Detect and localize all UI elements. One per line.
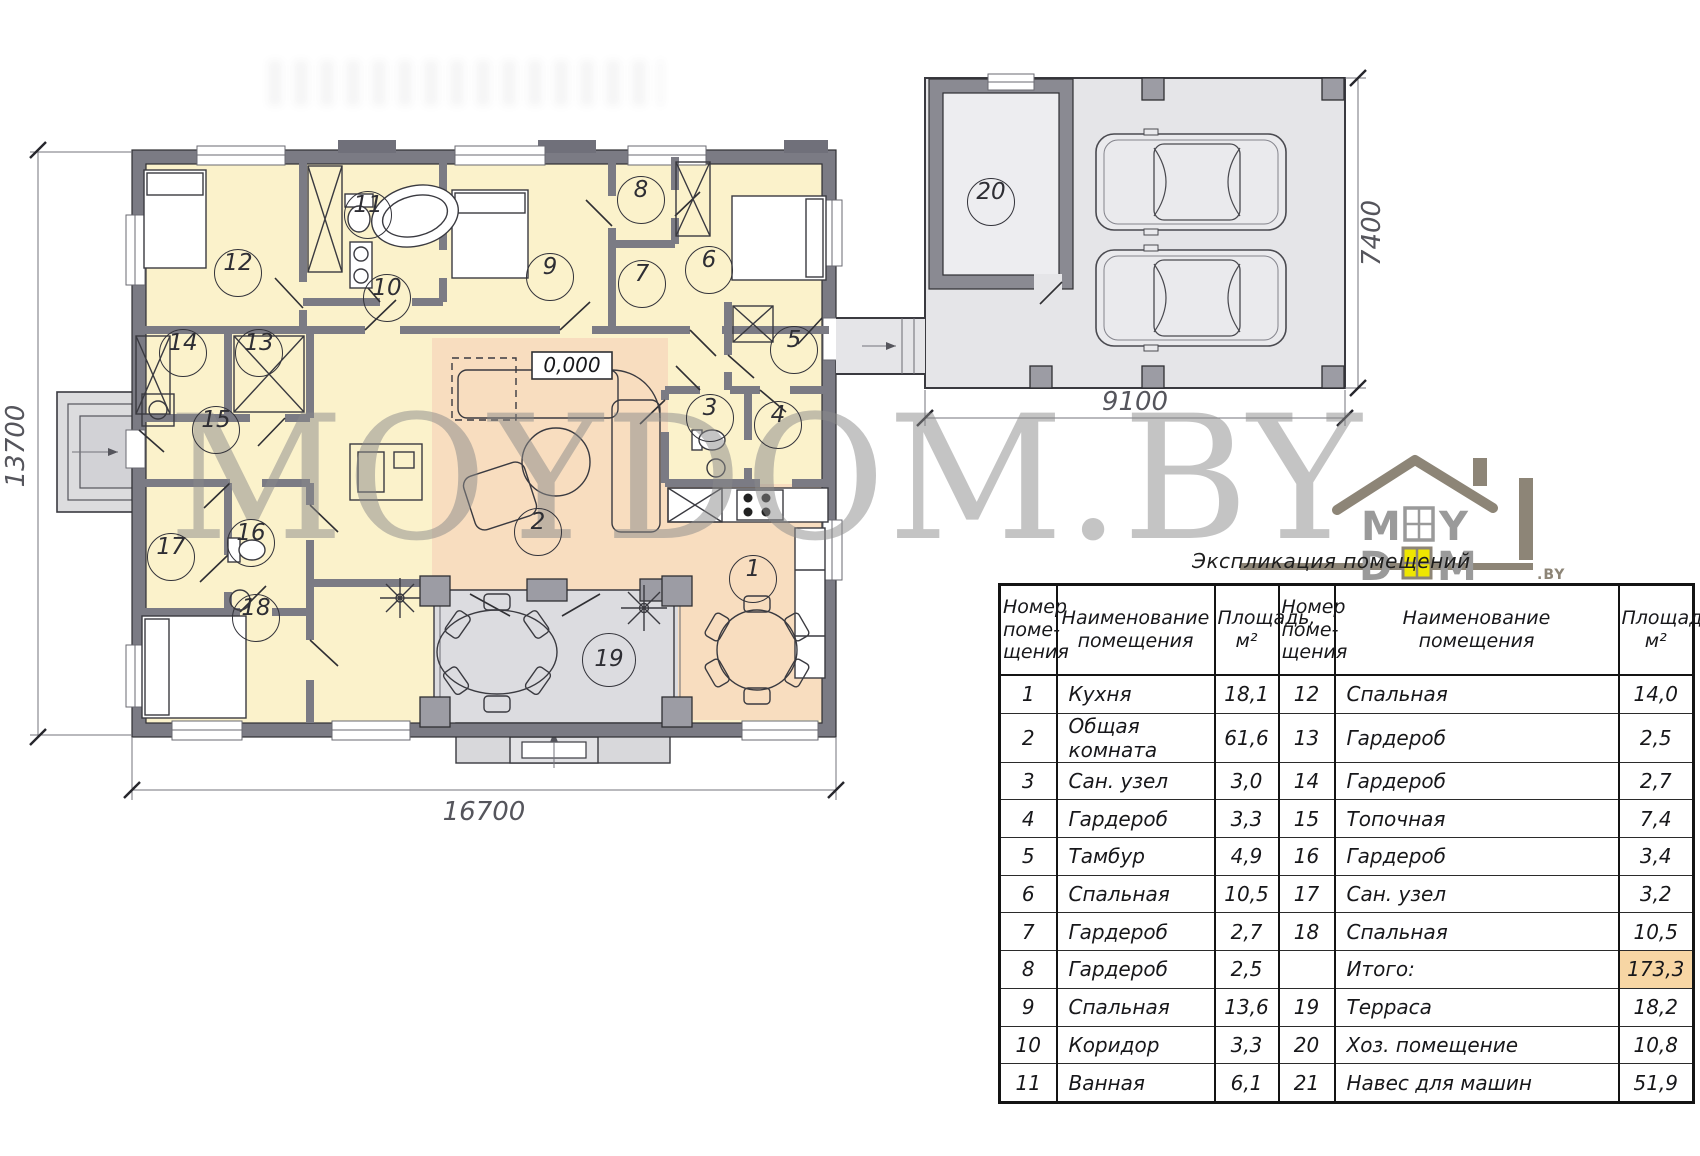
table-row: 11Ванная6,121Навес для машин51,9 xyxy=(1000,1064,1694,1103)
header-name-right: Наименование помещения xyxy=(1335,585,1619,676)
table-row: 6Спальная10,517Сан. узел3,2 xyxy=(1000,875,1694,913)
cell-lname: Спальная xyxy=(1057,875,1215,913)
table-row: 5Тамбур4,916Гардероб3,4 xyxy=(1000,838,1694,876)
cell-rarea: 14,0 xyxy=(1619,675,1694,713)
cell-larea: 2,5 xyxy=(1215,951,1279,989)
header-number-right: Номер поме- щения xyxy=(1279,585,1335,676)
room-legend-table: Номер поме- щения Наименование помещения… xyxy=(998,583,1695,1104)
cell-rname: Терраса xyxy=(1335,988,1619,1026)
cell-rn: 15 xyxy=(1279,800,1335,838)
cell-ln: 10 xyxy=(1000,1026,1057,1064)
cell-rn: 19 xyxy=(1279,988,1335,1026)
cell-rn: 20 xyxy=(1279,1026,1335,1064)
cell-rarea: 2,7 xyxy=(1619,762,1694,800)
room-label-15: 15 xyxy=(192,406,240,454)
cell-larea: 3,3 xyxy=(1215,800,1279,838)
cell-rname: Хоз. помещение xyxy=(1335,1026,1619,1064)
room-label-4: 4 xyxy=(754,401,802,449)
room-label-18: 18 xyxy=(232,594,280,642)
cell-rn xyxy=(1279,951,1335,989)
room-label-1: 1 xyxy=(729,555,777,603)
floorplan-sheet: 0,000 xyxy=(0,0,1700,1156)
cell-rname: Навес для машин xyxy=(1335,1064,1619,1103)
cell-lname: Общая комната xyxy=(1057,713,1215,762)
cell-rn: 18 xyxy=(1279,913,1335,951)
cell-ln: 3 xyxy=(1000,762,1057,800)
cell-lname: Гардероб xyxy=(1057,800,1215,838)
cell-lname: Спальная xyxy=(1057,988,1215,1026)
table-row: 8Гардероб2,5Итого:173,3 xyxy=(1000,951,1694,989)
header-area-right: Площадь, м² xyxy=(1619,585,1694,676)
cell-rarea: 10,8 xyxy=(1619,1026,1694,1064)
room-label-20: 20 xyxy=(967,178,1015,226)
header-name-left: Наименование помещения xyxy=(1057,585,1215,676)
cell-rarea: 10,5 xyxy=(1619,913,1694,951)
cell-larea: 61,6 xyxy=(1215,713,1279,762)
cell-rn: 16 xyxy=(1279,838,1335,876)
table-row: 10Коридор3,320Хоз. помещение10,8 xyxy=(1000,1026,1694,1064)
header-area-left: Площадь, м² xyxy=(1215,585,1279,676)
cell-rarea: 3,4 xyxy=(1619,838,1694,876)
table-row: 1Кухня18,112Спальная14,0 xyxy=(1000,675,1694,713)
cell-larea: 3,3 xyxy=(1215,1026,1279,1064)
cell-lname: Сан. узел xyxy=(1057,762,1215,800)
cell-rname: Гардероб xyxy=(1335,713,1619,762)
cell-rname: Сан. узел xyxy=(1335,875,1619,913)
cell-rarea: 7,4 xyxy=(1619,800,1694,838)
cell-rname: Топочная xyxy=(1335,800,1619,838)
room-label-9: 9 xyxy=(526,253,574,301)
dim-house-width: 16700 xyxy=(443,797,526,827)
cell-lname: Ванная xyxy=(1057,1064,1215,1103)
cell-larea: 6,1 xyxy=(1215,1064,1279,1103)
cell-rname: Гардероб xyxy=(1335,838,1619,876)
room-label-17: 17 xyxy=(147,533,195,581)
room-label-13: 13 xyxy=(235,329,283,377)
room-label-7: 7 xyxy=(618,260,666,308)
table-row: 3Сан. узел3,014Гардероб2,7 xyxy=(1000,762,1694,800)
room-label-2: 2 xyxy=(514,508,562,556)
level-mark-value: 0,000 xyxy=(543,353,600,377)
garage-carport xyxy=(925,74,1345,388)
cell-lname: Тамбур xyxy=(1057,838,1215,876)
table-row: 7Гардероб2,718Спальная10,5 xyxy=(1000,913,1694,951)
cell-rarea: 3,2 xyxy=(1619,875,1694,913)
room-label-10: 10 xyxy=(363,274,411,322)
cell-larea: 13,6 xyxy=(1215,988,1279,1026)
room-label-11: 11 xyxy=(344,191,392,239)
room-label-16: 16 xyxy=(227,519,275,567)
cell-rn: 21 xyxy=(1279,1064,1335,1103)
cell-ln: 6 xyxy=(1000,875,1057,913)
cell-rn: 13 xyxy=(1279,713,1335,762)
walkway xyxy=(836,318,925,374)
room-label-6: 6 xyxy=(685,246,733,294)
room-label-3: 3 xyxy=(686,394,734,442)
cell-rname: Спальная xyxy=(1335,913,1619,951)
room-label-12: 12 xyxy=(214,249,262,297)
entrance-porch xyxy=(57,392,135,512)
dim-garage-height: 7400 xyxy=(1357,200,1387,266)
room-label-14: 14 xyxy=(159,329,207,377)
table-header: Номер поме- щения Наименование помещения… xyxy=(1000,585,1694,676)
cell-rarea: 51,9 xyxy=(1619,1064,1694,1103)
cell-rn: 12 xyxy=(1279,675,1335,713)
cell-lname: Гардероб xyxy=(1057,951,1215,989)
room-label-5: 5 xyxy=(770,326,818,374)
room-table-body: 1Кухня18,112Спальная14,02Общая комната61… xyxy=(1000,675,1694,1102)
room-label-8: 8 xyxy=(617,176,665,224)
cell-ln: 2 xyxy=(1000,713,1057,762)
cell-ln: 8 xyxy=(1000,951,1057,989)
cell-larea: 2,7 xyxy=(1215,913,1279,951)
cell-rn: 17 xyxy=(1279,875,1335,913)
level-mark: 0,000 xyxy=(532,352,612,379)
cell-lname: Кухня xyxy=(1057,675,1215,713)
dim-house-height: 13700 xyxy=(1,405,31,488)
table-row: 2Общая комната61,613Гардероб2,5 xyxy=(1000,713,1694,762)
cell-ln: 1 xyxy=(1000,675,1057,713)
cell-ln: 4 xyxy=(1000,800,1057,838)
cell-rname: Гардероб xyxy=(1335,762,1619,800)
cell-ln: 11 xyxy=(1000,1064,1057,1103)
header-number-left: Номер поме- щения xyxy=(1000,585,1057,676)
cell-rn: 14 xyxy=(1279,762,1335,800)
cell-rname: Итого: xyxy=(1335,951,1619,989)
cell-larea: 3,0 xyxy=(1215,762,1279,800)
cell-ln: 9 xyxy=(1000,988,1057,1026)
cell-larea: 18,1 xyxy=(1215,675,1279,713)
table-row: 9Спальная13,619Терраса18,2 xyxy=(1000,988,1694,1026)
cell-rarea: 173,3 xyxy=(1619,951,1694,989)
table-row: 4Гардероб3,315Топочная7,4 xyxy=(1000,800,1694,838)
cell-larea: 10,5 xyxy=(1215,875,1279,913)
cell-rname: Спальная xyxy=(1335,675,1619,713)
cell-rarea: 2,5 xyxy=(1619,713,1694,762)
faint-header-artifact xyxy=(268,60,663,106)
cell-larea: 4,9 xyxy=(1215,838,1279,876)
room-label-19: 19 xyxy=(582,633,636,687)
cell-ln: 5 xyxy=(1000,838,1057,876)
logo-tld: .BY xyxy=(1537,567,1565,583)
cell-lname: Гардероб xyxy=(1057,913,1215,951)
cell-ln: 7 xyxy=(1000,913,1057,951)
cell-lname: Коридор xyxy=(1057,1026,1215,1064)
cell-rarea: 18,2 xyxy=(1619,988,1694,1026)
legend-title: Экспликация помещений xyxy=(1192,549,1471,573)
